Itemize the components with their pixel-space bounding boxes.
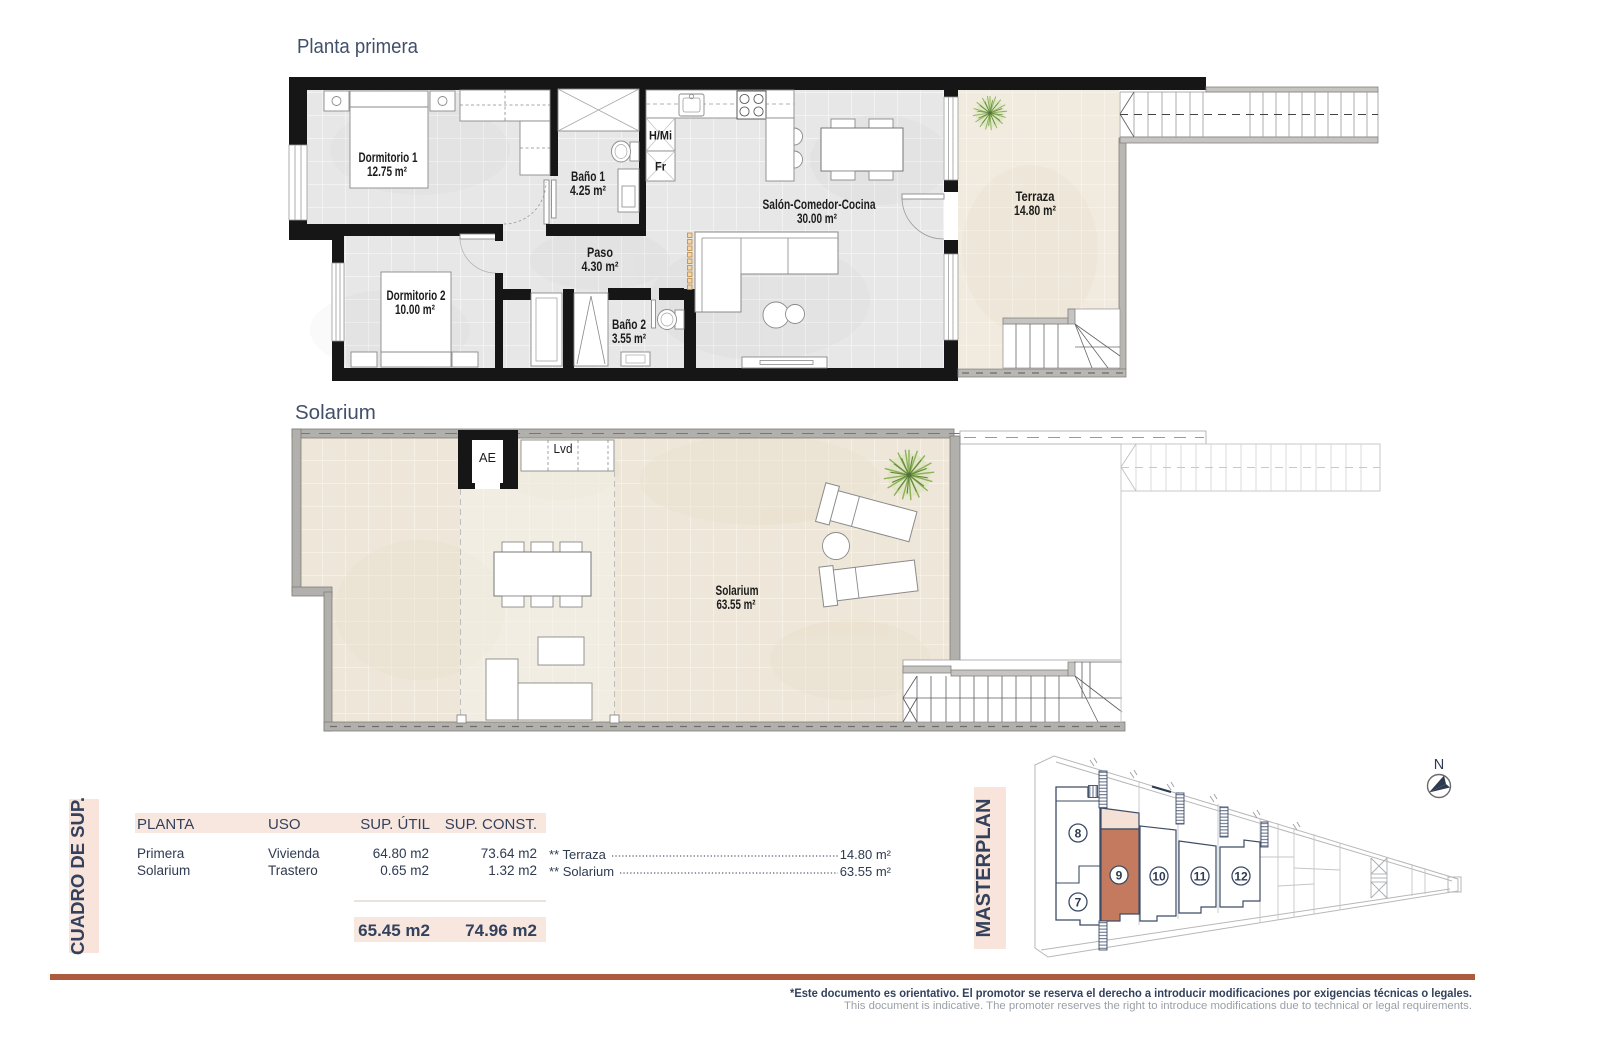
svg-text:Lvd: Lvd [554, 441, 573, 456]
svg-text:Vivienda: Vivienda [268, 846, 320, 861]
svg-text:30.00 m²: 30.00 m² [797, 210, 837, 226]
svg-text:4.30 m²: 4.30 m² [582, 258, 619, 274]
svg-text:Solarium: Solarium [137, 863, 190, 878]
svg-text:3.55 m²: 3.55 m² [612, 330, 646, 346]
svg-text:Primera: Primera [137, 846, 185, 861]
svg-text:SUP. CONST.: SUP. CONST. [445, 816, 537, 833]
svg-text:73.64 m2: 73.64 m2 [481, 846, 537, 861]
svg-text:64.80 m2: 64.80 m2 [373, 846, 429, 861]
svg-text:10.00 m²: 10.00 m² [395, 301, 435, 317]
svg-text:Planta primera: Planta primera [297, 35, 419, 58]
svg-text:8: 8 [1075, 827, 1082, 841]
svg-text:12.75 m²: 12.75 m² [367, 163, 407, 179]
svg-text:CUADRO DE SUP.: CUADRO DE SUP. [67, 797, 88, 955]
svg-text:USO: USO [268, 816, 301, 833]
svg-text:H/Mi: H/Mi [649, 129, 672, 143]
svg-text:N: N [1434, 757, 1444, 773]
svg-text:MASTERPLAN: MASTERPLAN [973, 799, 995, 938]
svg-text:7: 7 [1075, 896, 1082, 910]
svg-text:** Terraza: ** Terraza [549, 847, 607, 862]
svg-text:9: 9 [1116, 869, 1123, 883]
svg-text:AE: AE [479, 450, 496, 465]
svg-text:14.80 m²: 14.80 m² [840, 847, 892, 862]
svg-text:This document is indicative. T: This document is indicative. The promote… [844, 1000, 1472, 1012]
svg-text:PLANTA: PLANTA [137, 816, 194, 833]
svg-text:4.25 m²: 4.25 m² [570, 182, 606, 198]
svg-text:*Este documento es orientativo: *Este documento es orientativo. El promo… [790, 988, 1472, 1000]
svg-text:63.55 m²: 63.55 m² [840, 864, 892, 879]
svg-text:1.32 m2: 1.32 m2 [488, 863, 537, 878]
svg-text:Fr: Fr [655, 160, 666, 174]
svg-text:12: 12 [1234, 870, 1248, 884]
svg-text:** Solarium: ** Solarium [549, 864, 614, 879]
svg-text:63.55 m²: 63.55 m² [717, 596, 756, 612]
svg-text:11: 11 [1194, 870, 1207, 884]
svg-text:0.65 m2: 0.65 m2 [380, 863, 429, 878]
svg-text:SUP. ÚTIL: SUP. ÚTIL [360, 816, 430, 833]
svg-text:Solarium: Solarium [295, 401, 376, 424]
svg-text:74.96 m2: 74.96 m2 [465, 921, 537, 940]
svg-text:10: 10 [1152, 870, 1166, 884]
svg-text:65.45 m2: 65.45 m2 [358, 921, 430, 940]
svg-text:14.80 m²: 14.80 m² [1014, 202, 1056, 218]
svg-text:Trastero: Trastero [268, 863, 318, 878]
